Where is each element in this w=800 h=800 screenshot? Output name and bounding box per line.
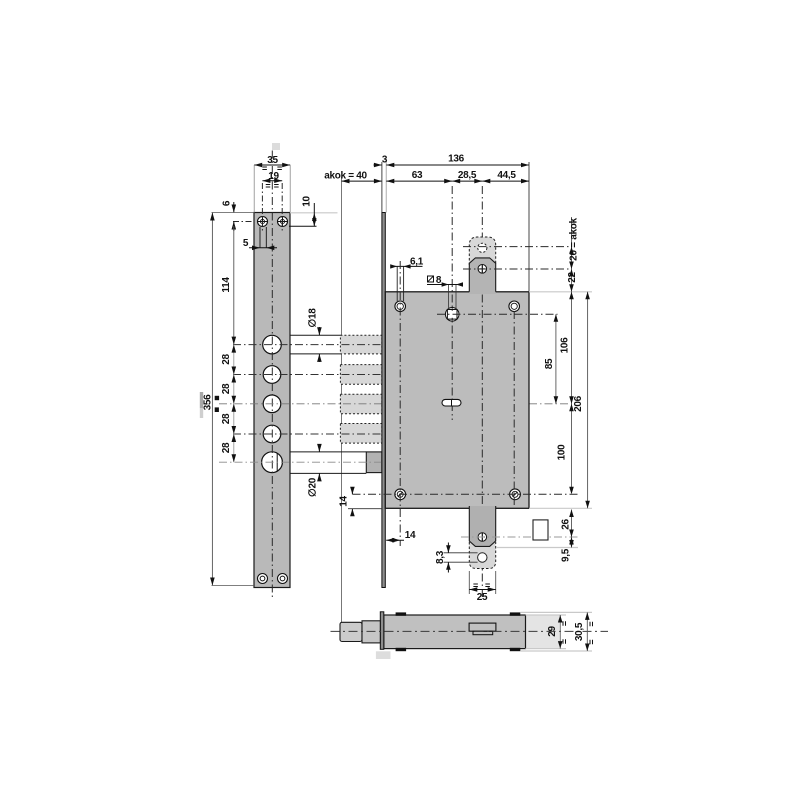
svg-text:25: 25 <box>477 592 488 603</box>
svg-text:29: 29 <box>547 626 558 637</box>
svg-text:6,1: 6,1 <box>410 257 424 268</box>
svg-text:9,5: 9,5 <box>561 548 572 562</box>
svg-text:206: 206 <box>573 395 584 412</box>
svg-text:28: 28 <box>221 413 232 424</box>
svg-text:28: 28 <box>221 383 232 394</box>
svg-text:114: 114 <box>221 277 232 293</box>
svg-text:∅18: ∅18 <box>308 308 319 328</box>
svg-text:136: 136 <box>448 154 465 165</box>
svg-text:26: 26 <box>561 519 572 530</box>
svg-text:=: = <box>262 164 267 174</box>
svg-text:3: 3 <box>382 155 388 166</box>
svg-text:14: 14 <box>405 530 416 541</box>
svg-text:356: 356 <box>203 394 214 411</box>
svg-text:100: 100 <box>557 444 568 461</box>
svg-text:28: 28 <box>221 442 232 453</box>
svg-text:106: 106 <box>560 337 571 354</box>
svg-text:44,5: 44,5 <box>497 170 516 181</box>
svg-text:63: 63 <box>412 170 423 181</box>
svg-text:=: = <box>265 181 270 191</box>
svg-text:akok = 40: akok = 40 <box>324 171 367 182</box>
svg-text:6: 6 <box>222 200 233 206</box>
svg-text:=: = <box>485 581 490 591</box>
svg-text:20 = akok: 20 = akok <box>569 217 580 260</box>
svg-text:=: = <box>587 621 597 626</box>
svg-text:28: 28 <box>221 354 232 365</box>
svg-text:=: = <box>473 581 478 591</box>
svg-text:=: = <box>274 181 279 191</box>
svg-text:8,3: 8,3 <box>435 550 446 564</box>
svg-text:22: 22 <box>567 272 578 283</box>
svg-text:30,5: 30,5 <box>574 622 585 641</box>
svg-text:85: 85 <box>544 358 555 369</box>
svg-text:8: 8 <box>436 275 442 286</box>
svg-text:=: = <box>560 621 570 626</box>
svg-text:5: 5 <box>243 238 249 249</box>
svg-text:28,5: 28,5 <box>458 170 477 181</box>
svg-text:=: = <box>587 639 597 644</box>
svg-text:=: = <box>560 639 570 644</box>
svg-text:∅20: ∅20 <box>308 477 319 497</box>
svg-text:14: 14 <box>339 496 350 507</box>
svg-text:10: 10 <box>302 196 313 207</box>
